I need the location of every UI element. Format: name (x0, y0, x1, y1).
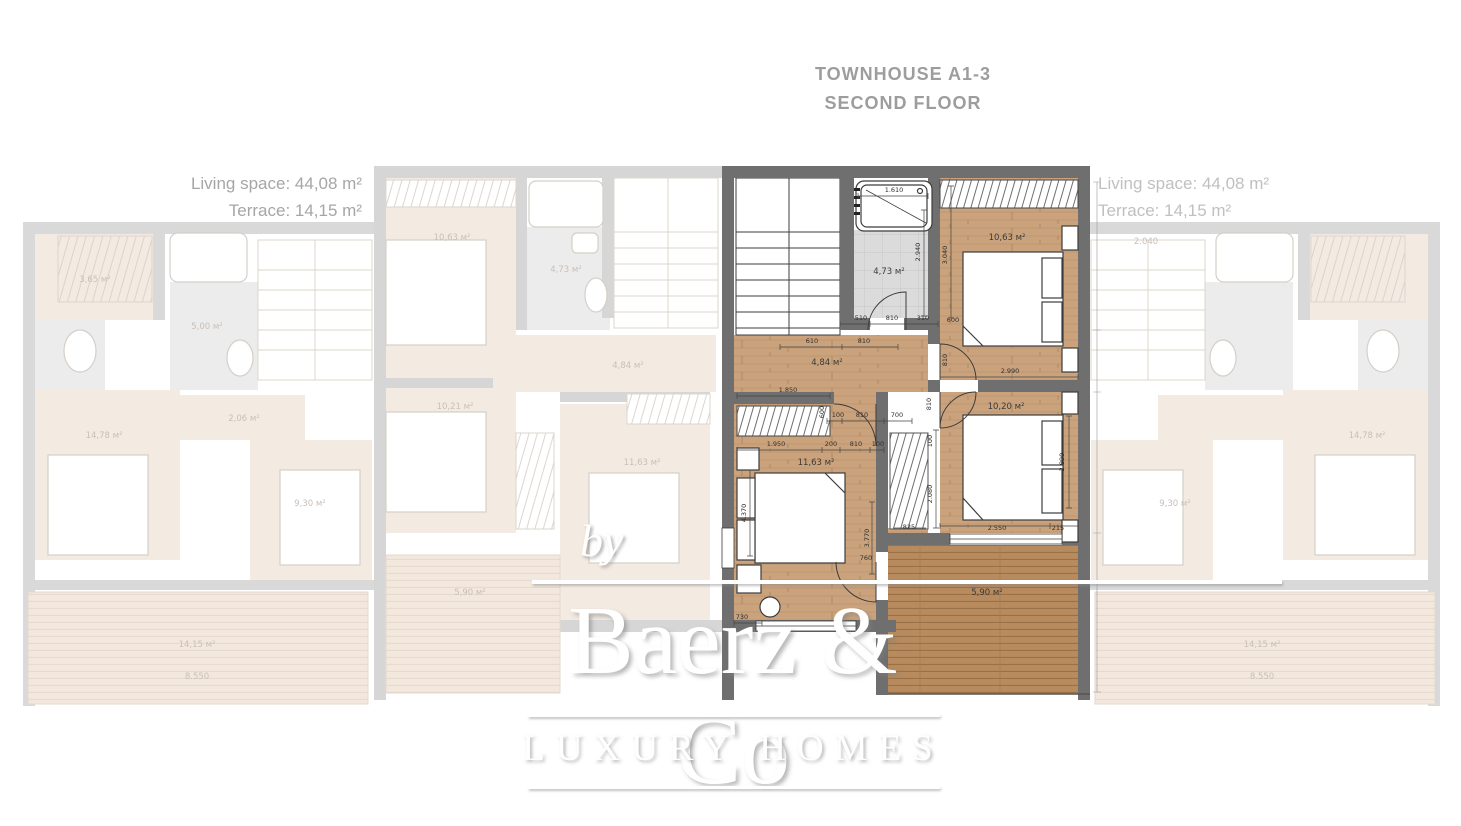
faded-room-label: 14,78 м² (86, 431, 123, 441)
room-area-label: 10,20 м² (988, 402, 1025, 412)
dimension-label: 2.990 (1001, 367, 1020, 375)
faded-room-label: 3,65 м² (79, 275, 110, 285)
room-area-label: 4,84 м² (811, 358, 842, 368)
dimension-label: 100 (872, 440, 884, 448)
page-title: TOWNHOUSE A1-3 SECOND FLOOR (703, 60, 1103, 118)
faded-room-label: 8.550 (185, 672, 209, 682)
faded-room-label: 11,63 м² (624, 458, 661, 468)
living-space-label-right: Living space: 44,08 m² (1098, 170, 1358, 197)
room-area-label: 4,73 м² (873, 267, 904, 277)
dimension-label: 1.610 (885, 186, 904, 194)
faded-room-label: 4,84 м² (612, 361, 643, 371)
room-area-label: 10,63 м² (989, 233, 1026, 243)
dimension-label: 825 (903, 523, 915, 531)
dimension-label: 600 (947, 316, 959, 324)
watermark-tagline: LUXURY HOMES (513, 727, 953, 770)
faded-room-label: 14,78 м² (1349, 431, 1386, 441)
faded-room-label: 5,90 м² (454, 588, 485, 598)
faded-room-label: 14,15 м² (1244, 640, 1281, 650)
dimension-label: 610 (806, 337, 818, 345)
watermark-rule-middle (528, 714, 940, 717)
right-unit-stats: Living space: 44,08 m² Terrace: 14,15 m² (1098, 170, 1358, 224)
room-area-label: 5,90 м² (971, 588, 1002, 598)
watermark-by: by (580, 514, 623, 567)
dimension-label: 310 (917, 314, 929, 322)
dimension-label: 810 (925, 398, 933, 410)
room-area-label: 11,63 м² (798, 458, 835, 468)
dimension-label: 2.080 (926, 485, 934, 504)
faded-room-label: 9,30 м² (294, 499, 325, 509)
faded-unit-left-outer (23, 222, 375, 706)
title-floor-name: SECOND FLOOR (703, 89, 1103, 118)
terrace-label-left: Terrace: 14,15 m² (130, 197, 362, 224)
bed (755, 473, 845, 563)
dimension-label: 3.770 (863, 529, 871, 548)
dimension-label: 1.850 (779, 386, 798, 394)
floorplan-page: 3,65 м²5,00 м²2,06 м²14,78 м²9,30 м²14,1… (0, 0, 1461, 826)
faded-room-label: 4,73 м² (550, 265, 581, 275)
dimension-label: 1.950 (767, 440, 786, 448)
faded-room-label: 2.040 (1134, 237, 1158, 247)
faded-room-label: 10,63 м² (434, 233, 471, 243)
dimension-label: 810 (941, 354, 949, 366)
faded-room-label: 9,30 м² (1159, 499, 1190, 509)
left-unit-stats: Living space: 44,08 m² Terrace: 14,15 m² (130, 170, 362, 224)
dimension-label: 510 (855, 314, 867, 322)
faded-room-label: 5,00 м² (191, 322, 222, 332)
dimension-label: 100 (926, 435, 934, 447)
dimension-label: 2.890 (1058, 453, 1066, 472)
watermark-rule-bottom (528, 786, 940, 789)
faded-unit-right (1088, 222, 1440, 706)
dimension-label: 810 (850, 440, 862, 448)
faded-room-label: 2,06 м² (228, 414, 259, 424)
watermark-rule-top (532, 580, 1282, 584)
title-unit-name: TOWNHOUSE A1-3 (703, 60, 1103, 89)
faded-room-label: 14,15 м² (179, 640, 216, 650)
staircase (736, 178, 840, 335)
faded-room-label: 8.550 (1250, 672, 1274, 682)
dimension-label: 2.940 (914, 243, 922, 262)
dimension-label: 2.550 (988, 524, 1007, 532)
dimension-label: 810 (858, 337, 870, 345)
dimension-label: 760 (860, 554, 872, 562)
dimension-label: 600 (818, 406, 826, 418)
dimension-label: 4.370 (740, 504, 748, 523)
watermark-brand: Baerz & Co (508, 586, 958, 806)
dimension-label: 100 (832, 411, 844, 419)
faded-room-label: 10,21 м² (437, 402, 474, 412)
dimension-label: 700 (891, 411, 903, 419)
living-space-label-left: Living space: 44,08 m² (130, 170, 362, 197)
terrace-label-right: Terrace: 14,15 m² (1098, 197, 1358, 224)
dimension-label: 810 (856, 411, 868, 419)
dimension-label: 200 (825, 440, 837, 448)
dimension-label: 810 (886, 314, 898, 322)
dimension-label: 215 (1052, 524, 1064, 532)
dimension-label: 3.040 (941, 246, 949, 265)
